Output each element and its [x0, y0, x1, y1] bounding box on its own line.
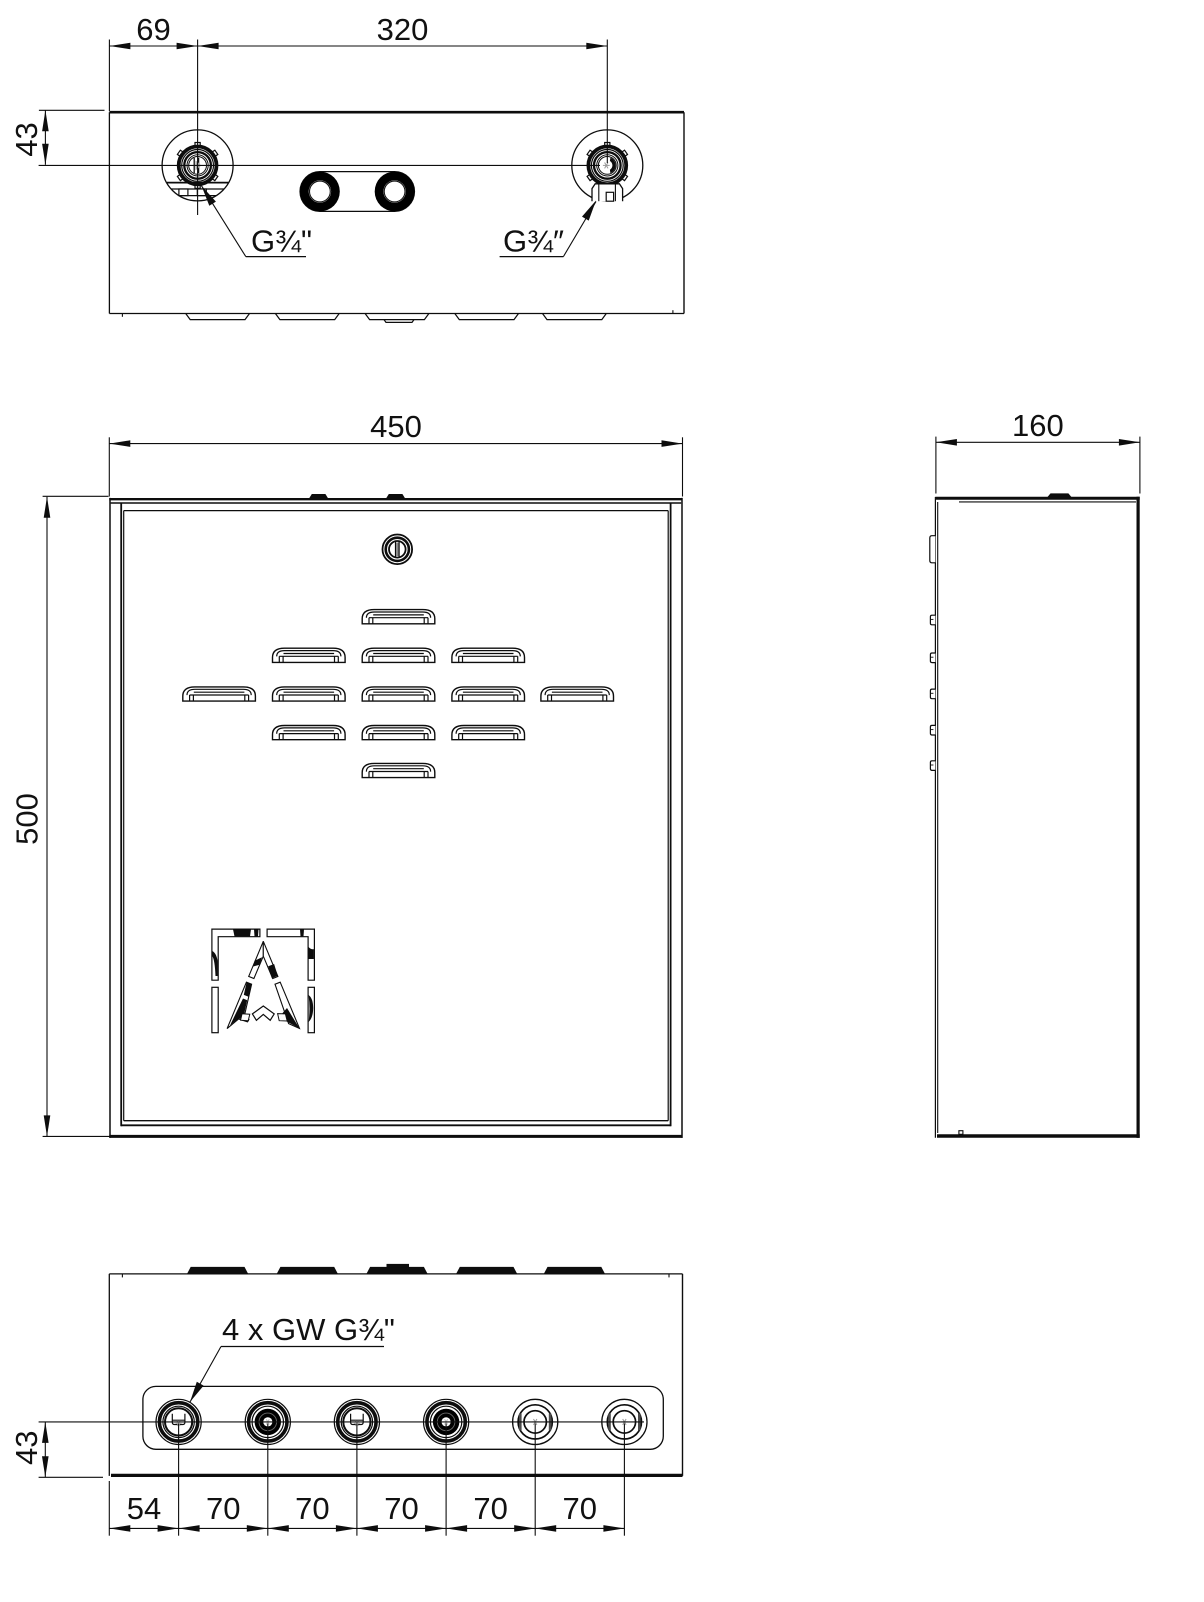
svg-text:54: 54: [127, 1491, 161, 1526]
svg-text:450: 450: [370, 409, 422, 444]
svg-text:320: 320: [377, 12, 429, 47]
svg-text:500: 500: [10, 793, 45, 845]
svg-text:70: 70: [473, 1491, 507, 1526]
svg-text:G¾": G¾": [251, 224, 312, 259]
svg-text:G¾″: G¾″: [503, 224, 564, 259]
svg-text:70: 70: [384, 1491, 418, 1526]
svg-text:43: 43: [9, 122, 44, 156]
svg-text:69: 69: [136, 12, 170, 47]
svg-text:70: 70: [563, 1491, 597, 1526]
svg-text:4 x GW G¾": 4 x GW G¾": [222, 1312, 395, 1347]
svg-text:43: 43: [9, 1431, 44, 1465]
svg-text:70: 70: [206, 1491, 240, 1526]
svg-text:160: 160: [1012, 408, 1064, 443]
svg-text:70: 70: [295, 1491, 329, 1526]
